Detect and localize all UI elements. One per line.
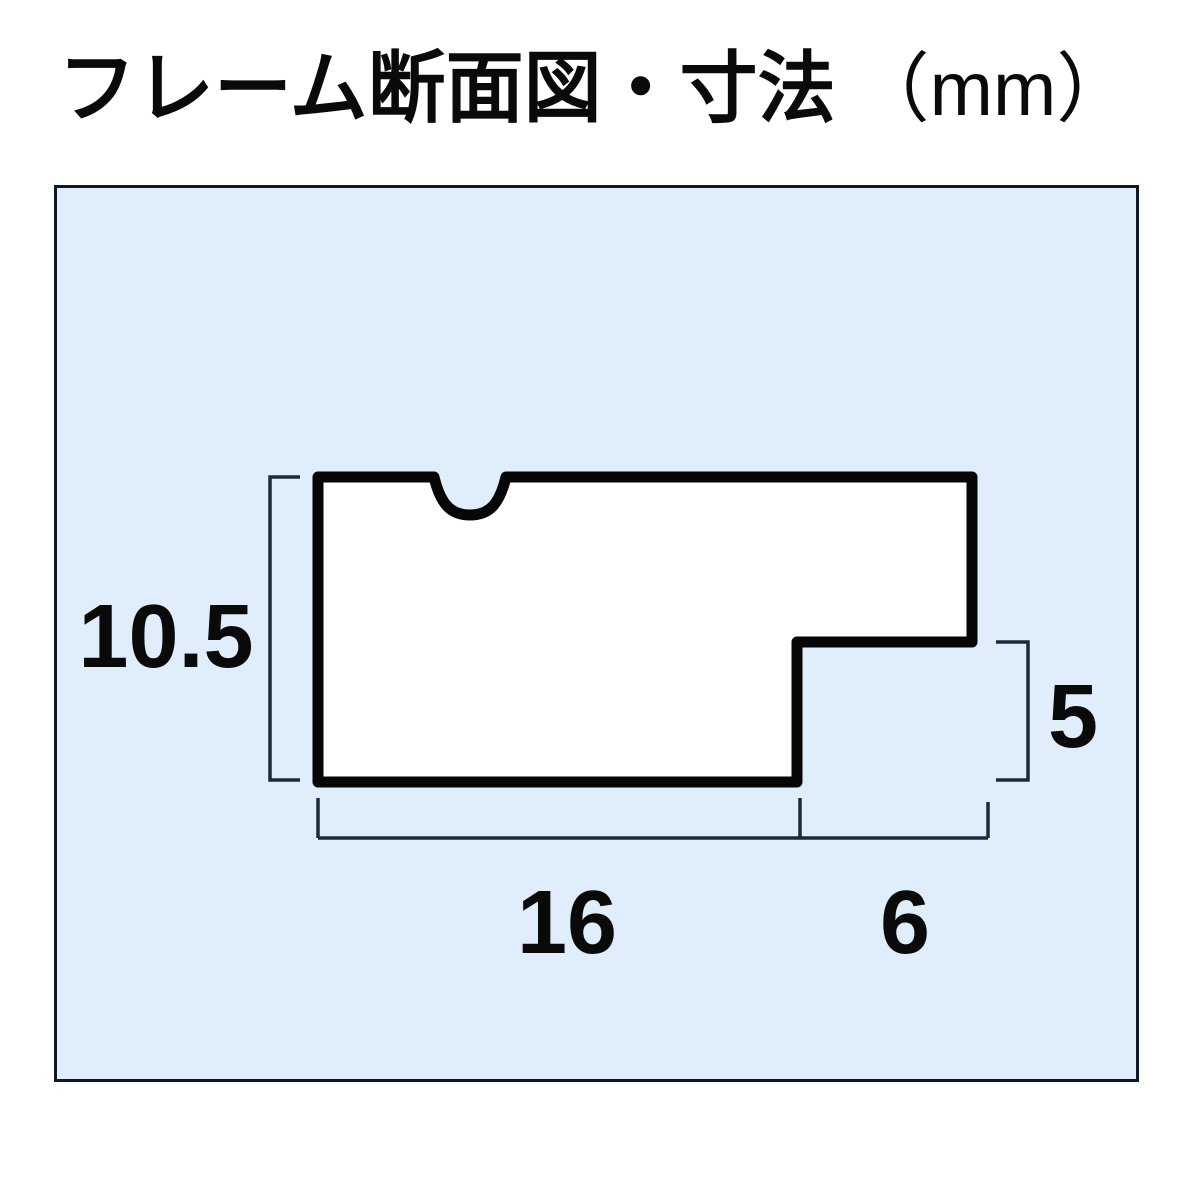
page-title-unit: （mm） bbox=[854, 47, 1133, 132]
page-title-text: フレーム断面図・寸法 bbox=[58, 44, 836, 132]
dimension-label-width: 16 bbox=[517, 878, 617, 968]
page-title: フレーム断面図・寸法（mm） bbox=[58, 46, 1132, 132]
dimension-label-height: 10.5 bbox=[78, 592, 253, 682]
dimension-label-rabbet-height: 5 bbox=[1048, 672, 1098, 762]
dimension-label-rabbet-width: 6 bbox=[880, 878, 930, 968]
page: フレーム断面図・寸法（mm） 10.5 5 16 6 bbox=[0, 0, 1200, 1200]
